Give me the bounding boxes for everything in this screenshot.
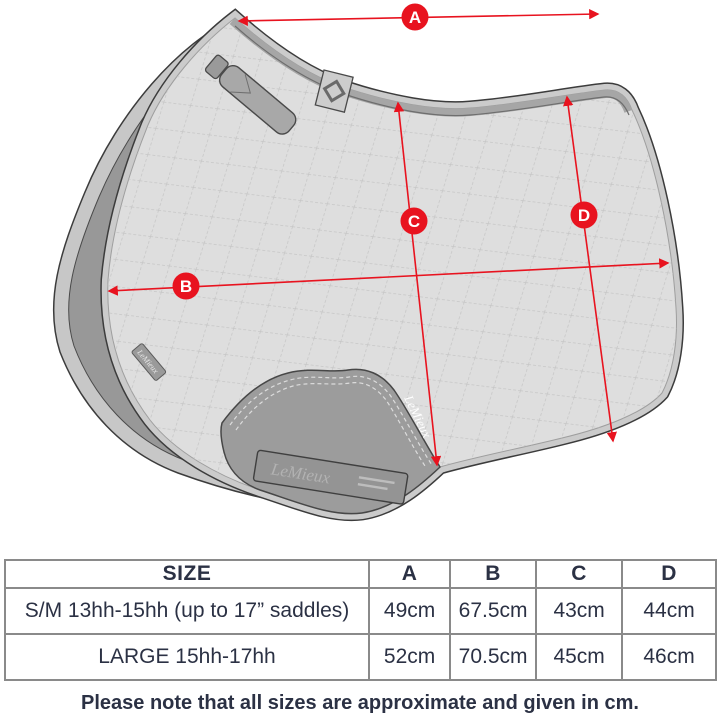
size-table-header-row: SIZE A B C D — [5, 560, 716, 588]
row-sm-c: 43cm — [536, 588, 622, 634]
saddle-pad-illustration: LeMieux LeMieux LeMieux — [0, 0, 720, 552]
row-large-b: 70.5cm — [450, 634, 536, 680]
header-size: SIZE — [5, 560, 369, 588]
row-large-d: 46cm — [622, 634, 716, 680]
header-a: A — [369, 560, 450, 588]
row-sm-size: S/M 13hh-15hh (up to 17” saddles) — [5, 588, 369, 634]
label-b: B — [173, 273, 200, 300]
row-sm-a: 49cm — [369, 588, 450, 634]
label-c: C — [401, 208, 428, 235]
svg-text:A: A — [409, 8, 421, 27]
table-row-large: LARGE 15hh-17hh 52cm 70.5cm 45cm 46cm — [5, 634, 716, 680]
size-table: SIZE A B C D S/M 13hh-15hh (up to 17” sa… — [4, 559, 717, 681]
svg-text:B: B — [180, 277, 192, 296]
saddle-pad-diagram: LeMieux LeMieux LeMieux — [0, 0, 720, 552]
approximate-sizes-note: Please note that all sizes are approxima… — [0, 692, 720, 715]
size-guide-page: LeMieux LeMieux LeMieux — [0, 0, 720, 726]
label-a: A — [402, 4, 429, 31]
row-sm-b: 67.5cm — [450, 588, 536, 634]
row-large-size: LARGE 15hh-17hh — [5, 634, 369, 680]
label-d: D — [571, 202, 598, 229]
row-large-c: 45cm — [536, 634, 622, 680]
header-c: C — [536, 560, 622, 588]
row-large-a: 52cm — [369, 634, 450, 680]
svg-text:C: C — [408, 212, 420, 231]
header-b: B — [450, 560, 536, 588]
header-d: D — [622, 560, 716, 588]
svg-text:D: D — [578, 206, 590, 225]
row-sm-d: 44cm — [622, 588, 716, 634]
table-row-sm: S/M 13hh-15hh (up to 17” saddles) 49cm 6… — [5, 588, 716, 634]
